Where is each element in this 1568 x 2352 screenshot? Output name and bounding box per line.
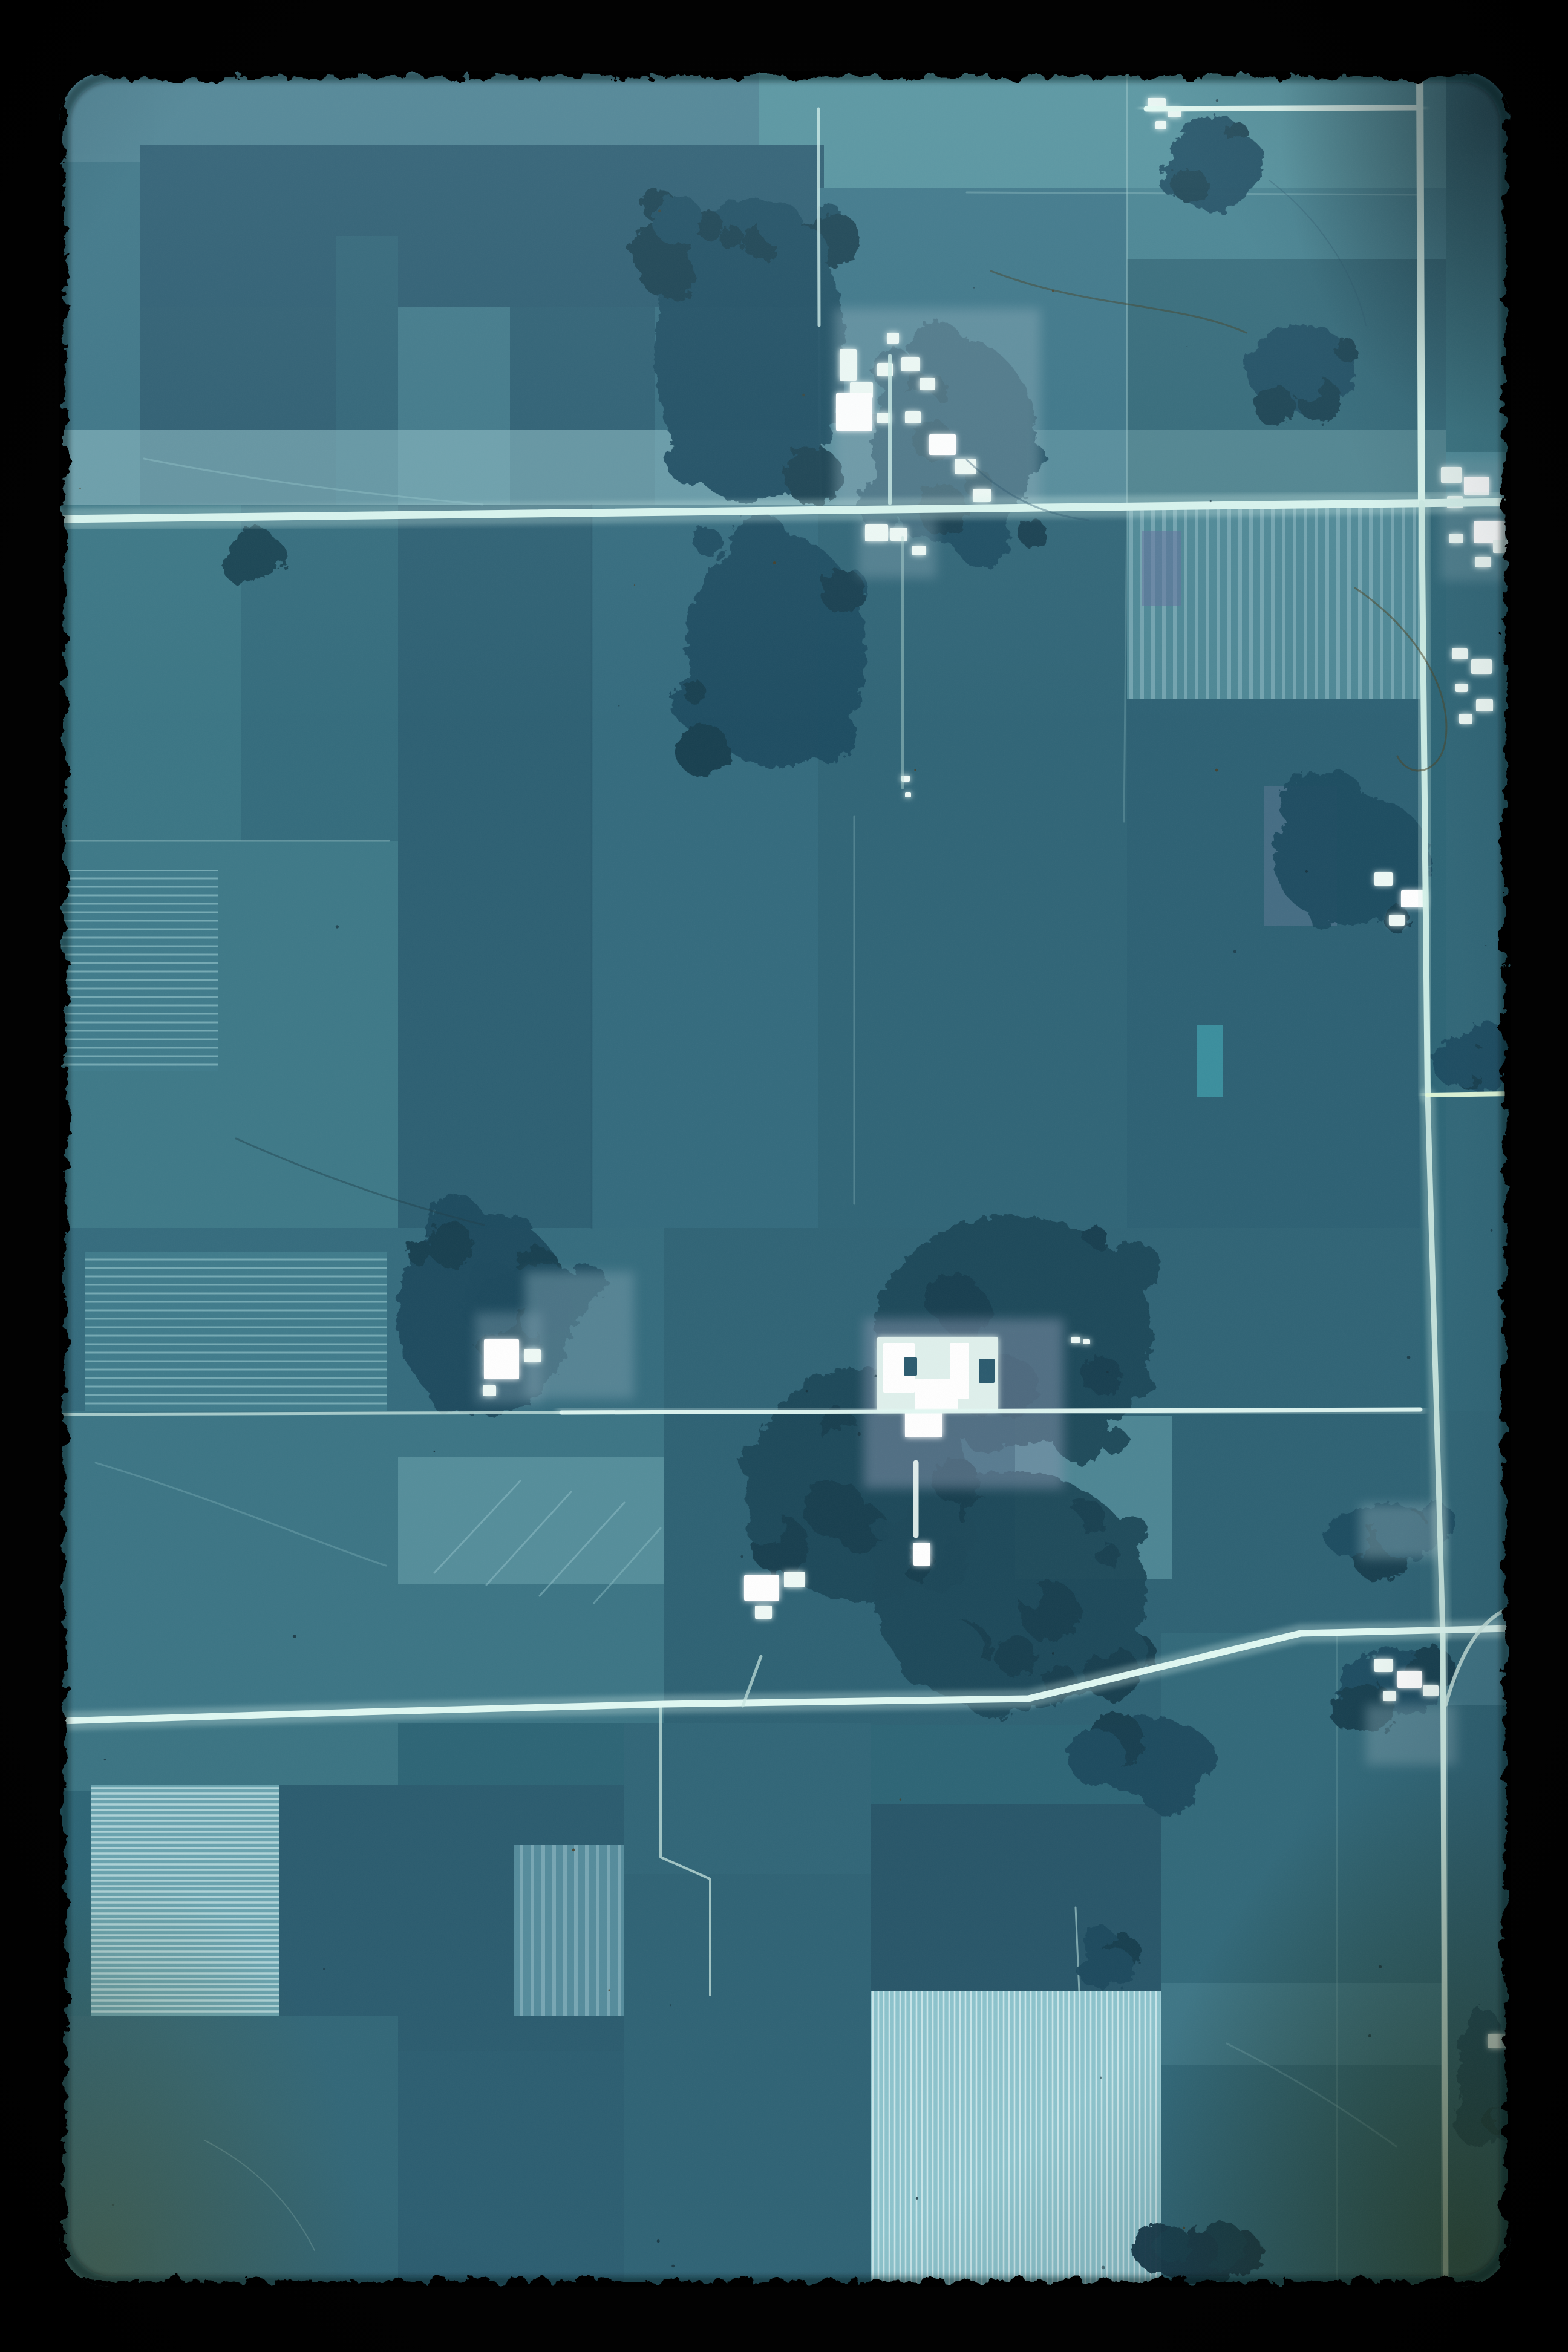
aerial-photo-image [59, 71, 1511, 2287]
photo-content [59, 71, 1511, 2287]
slide-photo [59, 71, 1511, 2287]
film-grain-overlay [59, 71, 1511, 2287]
